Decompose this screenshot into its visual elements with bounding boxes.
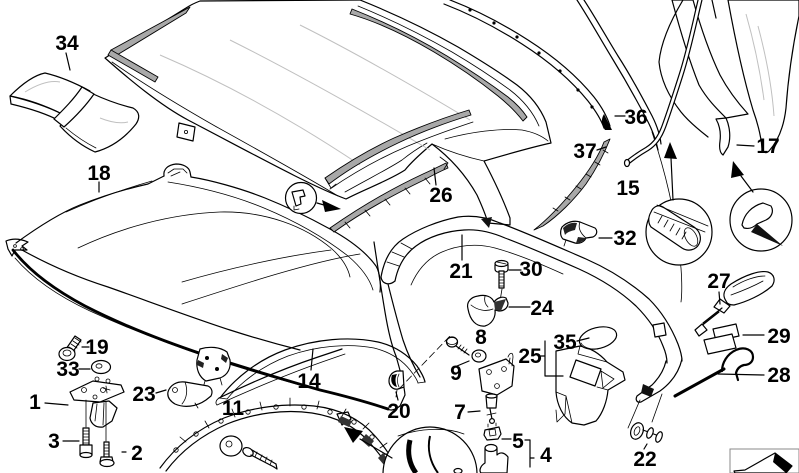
svg-text:15: 15 [616, 177, 640, 200]
svg-text:34: 34 [55, 32, 79, 55]
svg-text:37: 37 [573, 140, 596, 163]
svg-text:19: 19 [85, 336, 108, 359]
svg-text:35: 35 [553, 331, 577, 354]
svg-text:30: 30 [519, 258, 542, 281]
svg-text:28: 28 [767, 364, 791, 387]
svg-text:2: 2 [131, 442, 143, 465]
svg-text:7: 7 [454, 401, 466, 424]
svg-text:5: 5 [512, 430, 524, 453]
svg-text:20: 20 [387, 400, 410, 423]
svg-text:32: 32 [613, 227, 636, 250]
svg-text:11: 11 [222, 397, 245, 420]
svg-text:21: 21 [449, 260, 473, 283]
svg-text:29: 29 [767, 325, 790, 348]
svg-text:26: 26 [429, 184, 452, 207]
svg-text:1: 1 [29, 391, 41, 414]
svg-text:27: 27 [707, 270, 730, 293]
svg-text:17: 17 [756, 135, 779, 158]
svg-text:23: 23 [132, 383, 155, 406]
svg-text:4: 4 [540, 444, 552, 467]
svg-text:3: 3 [48, 430, 60, 453]
svg-text:9: 9 [450, 362, 462, 385]
svg-text:18: 18 [87, 162, 111, 185]
svg-text:33: 33 [56, 358, 79, 381]
svg-text:24: 24 [530, 297, 554, 320]
svg-text:8: 8 [475, 326, 487, 349]
svg-text:25: 25 [518, 345, 542, 368]
svg-text:14: 14 [297, 370, 321, 393]
svg-text:22: 22 [633, 448, 656, 471]
svg-text:36: 36 [624, 106, 647, 129]
